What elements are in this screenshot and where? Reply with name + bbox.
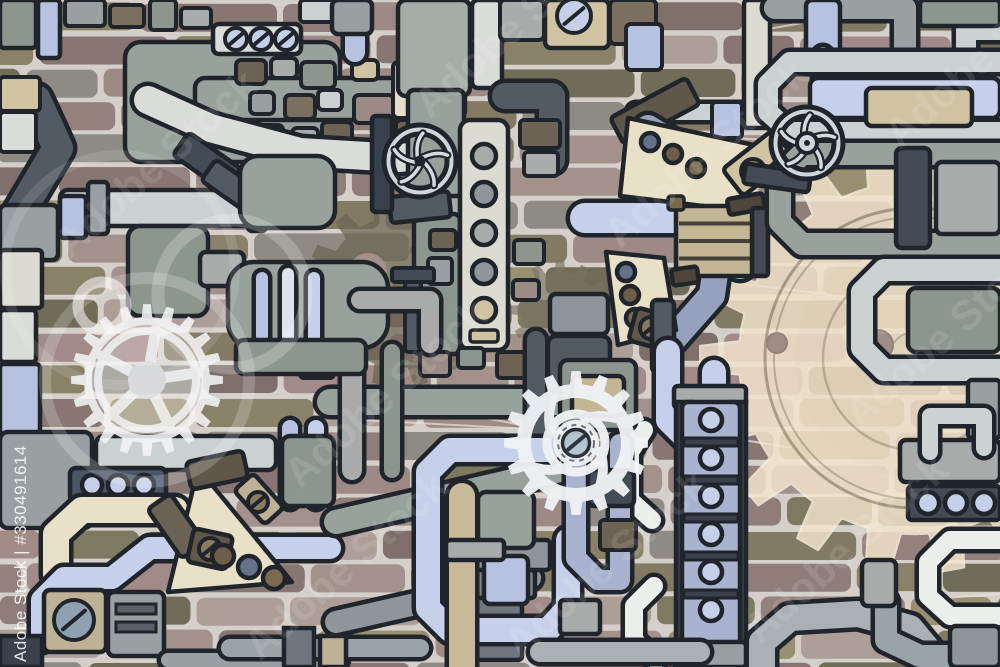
machine-block xyxy=(181,8,211,28)
screw-head-icon xyxy=(250,28,272,50)
rivet xyxy=(82,475,102,495)
rivet xyxy=(263,567,285,589)
rivet xyxy=(700,561,722,583)
screw-head-icon xyxy=(54,600,94,640)
rivet xyxy=(238,556,260,578)
screw-head-icon xyxy=(225,28,247,50)
machine-block xyxy=(318,90,342,110)
machine-block xyxy=(392,268,434,282)
rivet xyxy=(472,144,496,168)
watermark-id-text: Adobe Stock | #330491614 xyxy=(11,445,30,662)
machine-block xyxy=(320,636,346,667)
machine-block xyxy=(520,120,560,148)
rivet xyxy=(700,523,722,545)
rivet xyxy=(472,260,496,284)
machine-block xyxy=(896,148,930,248)
machine-block xyxy=(950,626,1000,667)
machine-block xyxy=(301,62,335,88)
machine-block xyxy=(862,560,896,606)
machine-block xyxy=(0,0,36,48)
machine-block xyxy=(150,0,176,30)
machine-block xyxy=(116,604,156,614)
machine-block xyxy=(285,95,315,119)
machine-block xyxy=(514,240,544,264)
machine-block xyxy=(0,364,40,434)
machine-block xyxy=(0,112,36,152)
machine-block xyxy=(110,5,144,27)
machine-block xyxy=(550,294,608,334)
watermark-id: Adobe Stock | #330491614 xyxy=(11,445,30,662)
screw-head-icon xyxy=(275,28,297,50)
machine-block xyxy=(38,0,60,58)
rivet xyxy=(700,409,722,431)
stock-image-canvas: Adobe StockAdobe StockAdobe StockAdobe S… xyxy=(0,0,1000,667)
machine-block xyxy=(513,280,539,300)
center-white-gear xyxy=(504,371,648,515)
rivet xyxy=(621,286,639,304)
rivet xyxy=(472,182,496,206)
machine-block xyxy=(271,58,297,78)
rivet xyxy=(700,599,722,621)
rivet xyxy=(945,492,967,514)
machine-block xyxy=(626,24,662,70)
rivet xyxy=(641,133,659,151)
machine-block xyxy=(484,556,528,604)
flywheel xyxy=(384,125,456,197)
machine-block xyxy=(671,266,699,285)
flywheel xyxy=(771,107,843,179)
machine-block xyxy=(332,0,372,34)
rivet xyxy=(472,221,496,245)
rivet xyxy=(700,447,722,469)
machine-block xyxy=(430,230,456,250)
machine-block xyxy=(446,540,504,560)
machine-block xyxy=(0,77,40,111)
rivet xyxy=(973,492,995,514)
rivet xyxy=(617,263,635,281)
screw-head-icon xyxy=(248,492,268,512)
steampunk-machinery-illustration: Adobe StockAdobe StockAdobe StockAdobe S… xyxy=(0,0,1000,667)
rivet xyxy=(212,545,234,567)
machine-block xyxy=(524,152,558,176)
machine-block xyxy=(116,622,156,632)
machine-block xyxy=(65,0,105,26)
machine-block xyxy=(936,162,1000,234)
